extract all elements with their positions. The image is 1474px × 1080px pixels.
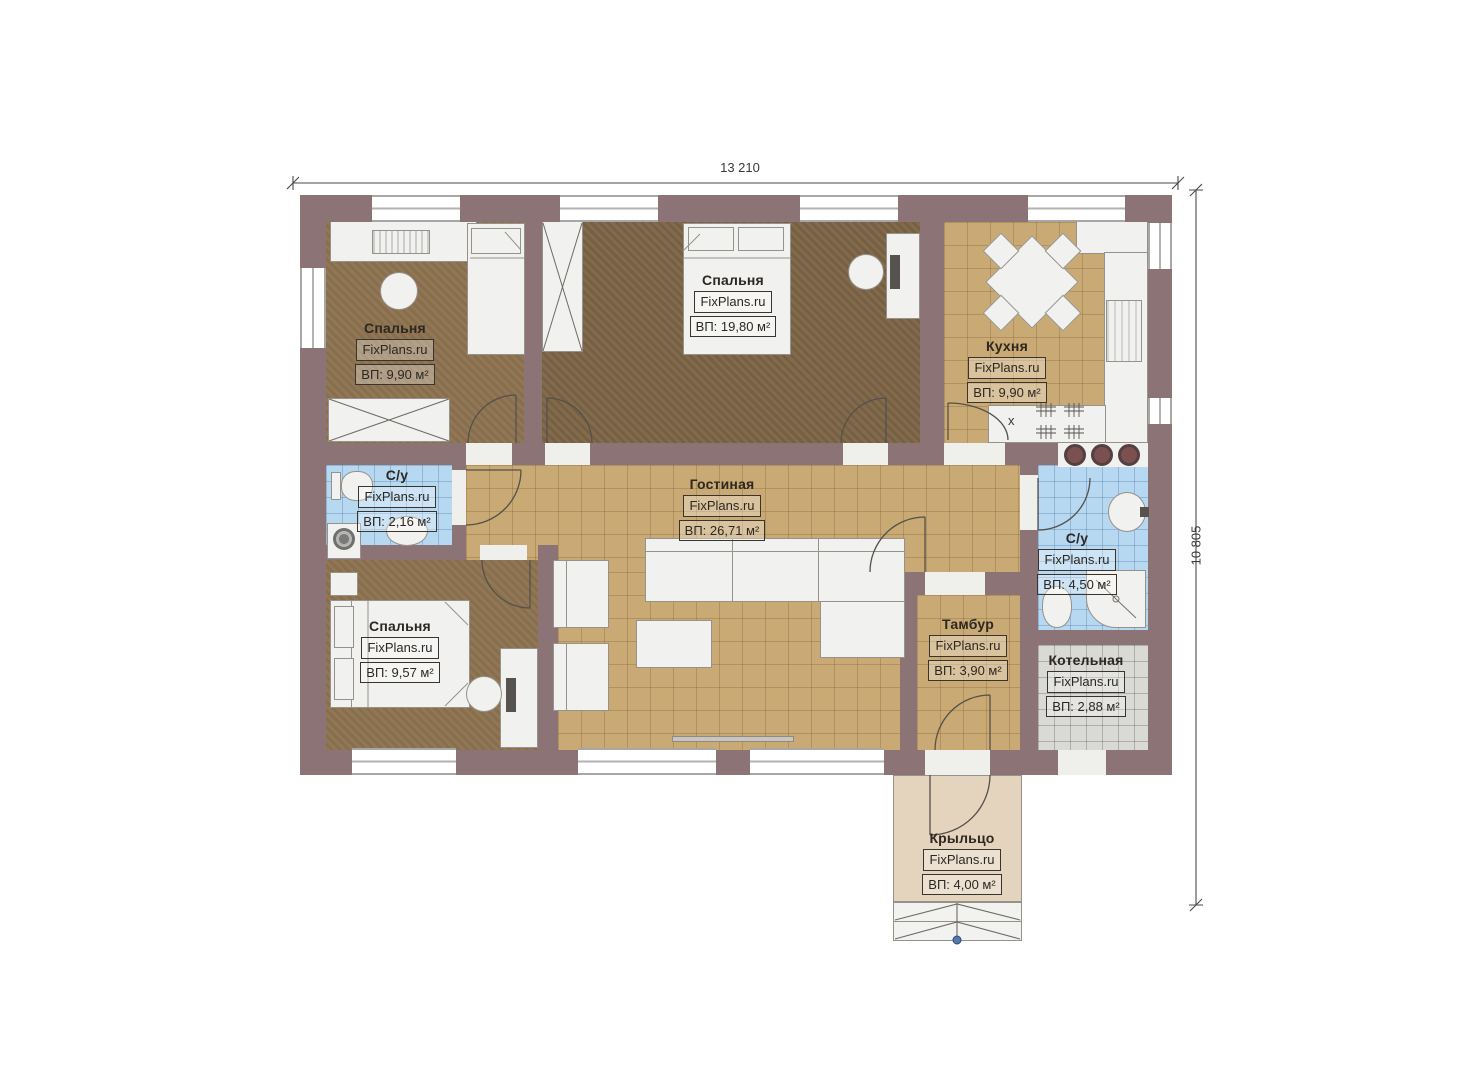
window-bottom-3 (750, 748, 884, 775)
kitchen-counter-top (1076, 222, 1148, 254)
room-name: Котельная (1048, 652, 1123, 668)
office-chair (848, 254, 884, 290)
brand-box: FixPlans.ru (968, 357, 1045, 379)
floor-plan-canvas: х Спальня FixPlans.ru ВП: 9,90 м² Спальн… (0, 0, 1474, 1080)
bar-stool (1118, 444, 1140, 466)
brand-box: FixPlans.ru (694, 291, 771, 313)
room-name: Крыльцо (929, 830, 994, 846)
wardrobe (328, 398, 450, 442)
closet (542, 222, 583, 352)
area-box: ВП: 4,00 м² (922, 874, 1001, 896)
kitchen-sink (1106, 300, 1142, 362)
door-opening-bedroom2-right (843, 443, 888, 465)
room-label-bedroom-top-center: Спальня FixPlans.ru ВП: 19,80 м² (668, 272, 798, 337)
brand-box: FixPlans.ru (1038, 549, 1115, 571)
area-box: ВП: 9,90 м² (355, 364, 434, 386)
area-box: ВП: 19,80 м² (690, 316, 777, 338)
area-box: ВП: 4,50 м² (1037, 574, 1116, 596)
brand-box: FixPlans.ru (929, 635, 1006, 657)
armchair (553, 643, 609, 711)
area-box: ВП: 2,88 м² (1046, 696, 1125, 718)
room-name: С/у (1066, 530, 1088, 546)
bar-stool (1064, 444, 1086, 466)
room-name: Спальня (364, 320, 426, 336)
room-label-kitchen: Кухня FixPlans.ru ВП: 9,90 м² (942, 338, 1072, 403)
room-name: Спальня (369, 618, 431, 634)
window-top-4 (1028, 195, 1125, 222)
brand-box: FixPlans.ru (361, 637, 438, 659)
sofa (645, 538, 905, 602)
pillow (688, 227, 734, 251)
area-box: ВП: 2,16 м² (357, 511, 436, 533)
room-label-bedroom-bottom-left: Спальня FixPlans.ru ВП: 9,57 м² (335, 618, 465, 683)
door-opening-kitchen (944, 443, 1005, 465)
area-box: ВП: 3,90 м² (928, 660, 1007, 682)
brand-box: FixPlans.ru (1047, 671, 1124, 693)
pillow (471, 228, 521, 254)
window-left-1 (300, 268, 326, 348)
window-bottom-1 (352, 748, 456, 775)
bar-stool (1091, 444, 1113, 466)
nightstand (330, 572, 358, 596)
window-right-1 (1148, 223, 1172, 269)
brand-box: FixPlans.ru (923, 849, 1000, 871)
door-opening-entrance (925, 750, 990, 775)
office-chair (380, 272, 418, 310)
radio-unit (372, 230, 430, 254)
dimension-width-label: 13 210 (695, 160, 785, 175)
room-label-porch: Крыльцо FixPlans.ru ВП: 4,00 м² (900, 830, 1024, 895)
door-opening-bedroom3 (480, 545, 527, 560)
window-top-1 (372, 195, 460, 222)
door-opening-bathroom-left (452, 470, 466, 525)
sink-tap (1140, 507, 1149, 517)
kitchen-counter-bottom (988, 405, 1106, 443)
toilet (331, 472, 341, 500)
laptop (506, 678, 516, 712)
room-name: Кухня (986, 338, 1028, 354)
window-top-2 (560, 195, 658, 222)
door-opening-bedroom1 (466, 443, 512, 465)
armchair (553, 560, 609, 628)
stove-mark-label: х (1008, 413, 1015, 428)
dimension-height-label: 10 805 (1189, 501, 1204, 591)
room-name: Спальня (702, 272, 764, 288)
brand-box: FixPlans.ru (683, 495, 760, 517)
coffee-table (636, 620, 712, 668)
area-box: ВП: 26,71 м² (679, 520, 766, 542)
laptop (890, 255, 900, 289)
door-opening-vestibule-inner (925, 572, 985, 595)
window-right-2 (1148, 398, 1172, 424)
room-name: Гостиная (690, 476, 755, 492)
room-name: Тамбур (942, 616, 994, 632)
room-name: С/у (386, 467, 408, 483)
porch-step-1 (893, 902, 1022, 922)
room-label-bathroom-right: С/у FixPlans.ru ВП: 4,50 м² (1022, 530, 1132, 595)
room-label-living-room: Гостиная FixPlans.ru ВП: 26,71 м² (657, 476, 787, 541)
door-opening-bedroom2-left (545, 443, 590, 465)
room-label-bedroom-top-left: Спальня FixPlans.ru ВП: 9,90 м² (330, 320, 460, 385)
window-top-3 (800, 195, 898, 222)
room-label-vestibule: Тамбур FixPlans.ru ВП: 3,90 м² (913, 616, 1023, 681)
door-opening-boiler (1058, 750, 1106, 775)
room-label-bathroom-left: С/у FixPlans.ru ВП: 2,16 м² (342, 467, 452, 532)
room-label-boiler-room: Котельная FixPlans.ru ВП: 2,88 м² (1031, 652, 1141, 717)
tv-stand (672, 736, 794, 742)
window-bottom-2 (578, 748, 716, 775)
brand-box: FixPlans.ru (356, 339, 433, 361)
pillow (738, 227, 784, 251)
porch-step-2 (893, 921, 1022, 941)
area-box: ВП: 9,90 м² (967, 382, 1046, 404)
brand-box: FixPlans.ru (358, 486, 435, 508)
office-chair (466, 676, 502, 712)
area-box: ВП: 9,57 м² (360, 662, 439, 684)
door-opening-bathroom-right (1020, 475, 1038, 530)
